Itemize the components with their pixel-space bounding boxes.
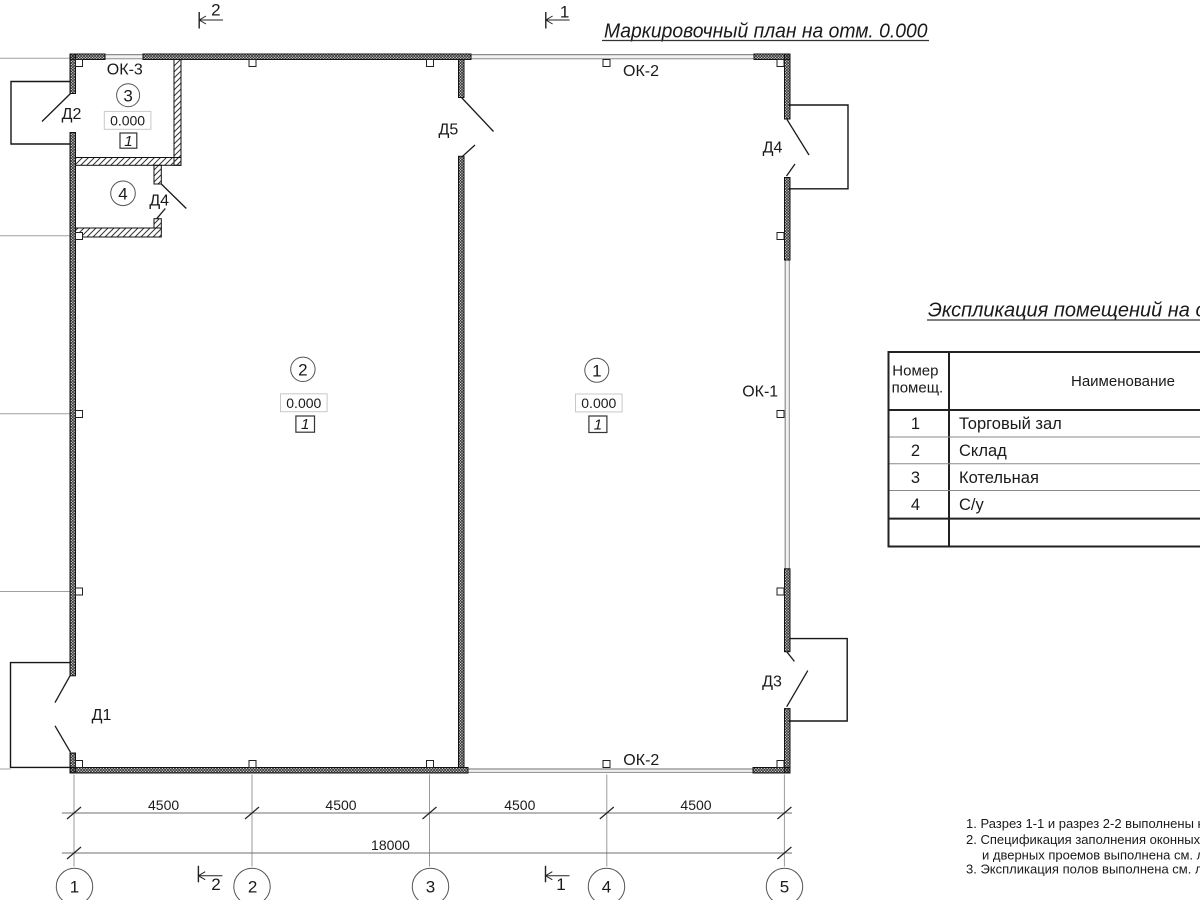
svg-text:2: 2 xyxy=(211,875,220,894)
svg-text:2: 2 xyxy=(298,360,307,379)
svg-text:Д1: Д1 xyxy=(92,707,112,724)
svg-text:2: 2 xyxy=(911,442,920,460)
svg-text:Склад: Склад xyxy=(959,442,1007,460)
svg-text:1: 1 xyxy=(556,875,565,894)
svg-text:ОК-1: ОК-1 xyxy=(742,384,778,401)
svg-text:Д5: Д5 xyxy=(439,122,459,139)
svg-text:2. Спецификация заполнения око: 2. Спецификация заполнения оконных и две… xyxy=(966,832,1200,847)
svg-text:Д4: Д4 xyxy=(763,140,783,157)
svg-text:ОК-3: ОК-3 xyxy=(107,61,143,78)
svg-text:1: 1 xyxy=(911,415,920,433)
svg-text:4: 4 xyxy=(911,496,920,514)
svg-text:1: 1 xyxy=(124,133,132,150)
svg-text:3: 3 xyxy=(911,469,920,487)
svg-text:Маркировочный план на отм. 0.0: Маркировочный план на отм. 0.000 xyxy=(604,21,928,43)
svg-text:1: 1 xyxy=(301,416,309,433)
svg-text:3: 3 xyxy=(123,86,132,105)
svg-text:Экспликация помещений на отм.: Экспликация помещений на отм. 0.000 xyxy=(928,300,1200,322)
svg-text:С/у: С/у xyxy=(959,496,985,514)
svg-text:Наименование: Наименование xyxy=(1071,373,1175,390)
svg-text:и дверных проемов выполнена см: и дверных проемов выполнена см. лист 4 xyxy=(982,847,1200,862)
svg-text:Д3: Д3 xyxy=(762,673,782,690)
svg-text:ОК-2: ОК-2 xyxy=(623,63,659,80)
svg-text:помещ.: помещ. xyxy=(892,380,944,397)
svg-text:Д2: Д2 xyxy=(62,106,82,123)
svg-text:3: 3 xyxy=(426,878,435,897)
svg-text:0.000: 0.000 xyxy=(110,112,145,128)
svg-text:4500: 4500 xyxy=(504,797,535,813)
svg-text:5: 5 xyxy=(780,878,789,897)
svg-text:Номер: Номер xyxy=(892,363,938,380)
svg-text:2: 2 xyxy=(248,878,257,897)
svg-text:1: 1 xyxy=(592,361,601,380)
svg-text:1: 1 xyxy=(560,3,569,22)
svg-text:4: 4 xyxy=(118,184,127,203)
svg-text:ОК-2: ОК-2 xyxy=(623,752,659,769)
svg-text:18000: 18000 xyxy=(371,837,410,853)
svg-text:Торговый зал: Торговый зал xyxy=(959,415,1062,433)
svg-text:4: 4 xyxy=(602,878,611,897)
svg-text:1: 1 xyxy=(594,416,602,433)
svg-text:Д4: Д4 xyxy=(149,193,169,210)
svg-text:4500: 4500 xyxy=(148,797,179,813)
svg-text:1: 1 xyxy=(70,878,79,897)
svg-text:0.000: 0.000 xyxy=(581,395,616,411)
svg-text:1. Разрез 1-1 и разрез 2-2 вып: 1. Разрез 1-1 и разрез 2-2 выполнены на … xyxy=(966,816,1200,831)
svg-text:2: 2 xyxy=(211,1,220,20)
svg-text:4500: 4500 xyxy=(680,797,711,813)
svg-text:4500: 4500 xyxy=(325,797,356,813)
svg-text:3. Экспликация полов выполнена: 3. Экспликация полов выполнена см. лист … xyxy=(966,862,1200,877)
svg-text:Котельная: Котельная xyxy=(959,469,1039,487)
svg-text:0.000: 0.000 xyxy=(286,395,321,411)
